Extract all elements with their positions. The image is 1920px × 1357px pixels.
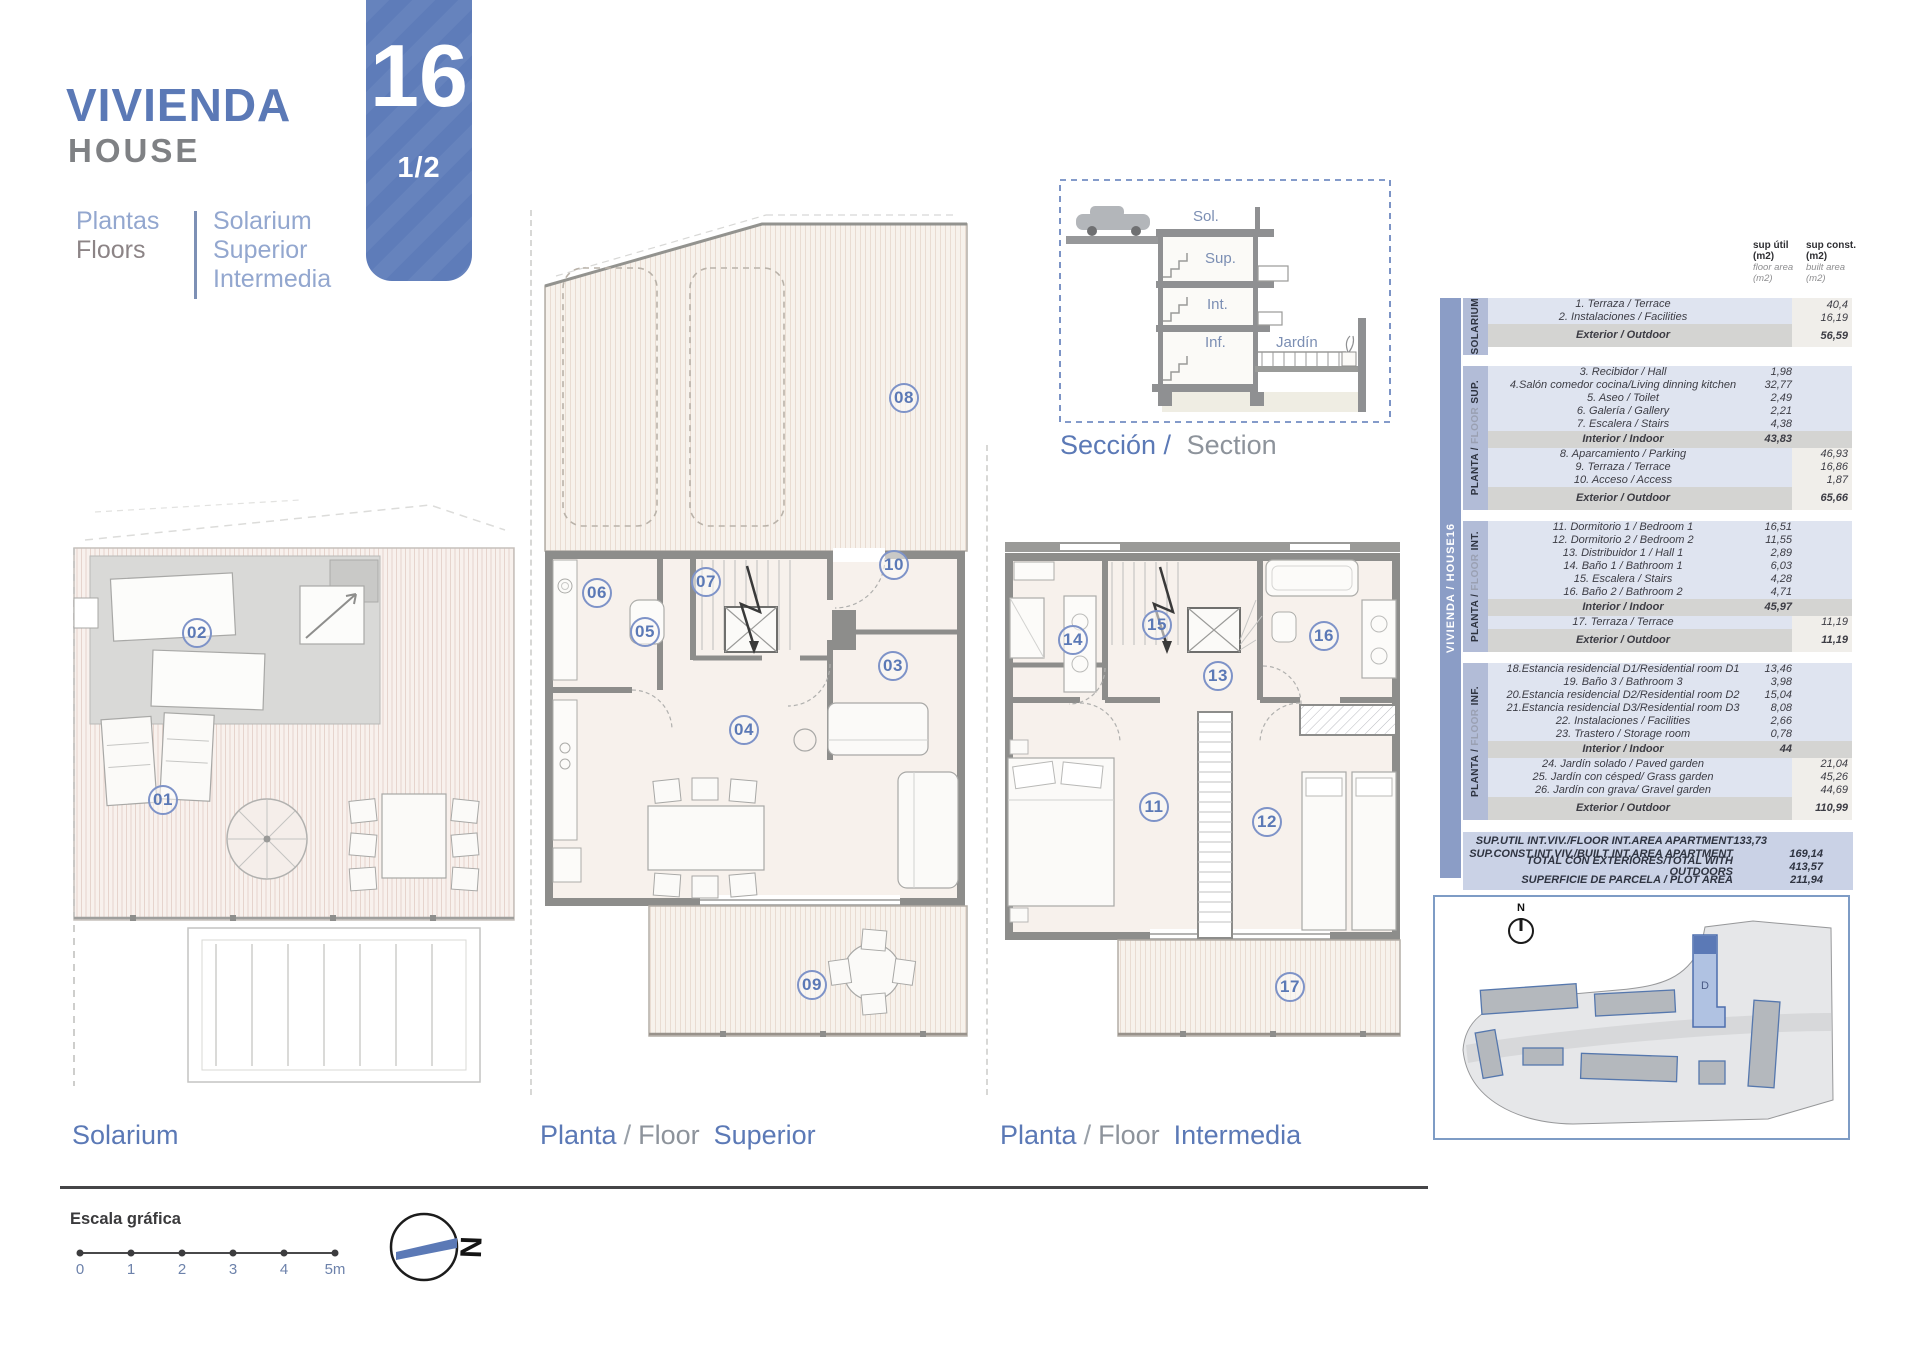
page-title-en: HOUSE bbox=[68, 132, 200, 170]
area-row-floor-value: 45,97 bbox=[1758, 601, 1792, 613]
area-row: 18.Estancia residencial D1/Residential r… bbox=[1488, 663, 1852, 676]
room-number-badge: 17 bbox=[1275, 972, 1305, 1002]
area-row-floor-value: 1,98 bbox=[1758, 366, 1792, 378]
room-number-badge: 15 bbox=[1142, 610, 1172, 640]
area-row-floor-value: 4,38 bbox=[1758, 418, 1792, 430]
plot-boundary-line bbox=[986, 445, 988, 1095]
area-row-built-value: 44,69 bbox=[1792, 784, 1852, 797]
area-row-built-value bbox=[1792, 676, 1852, 689]
parasol bbox=[227, 799, 307, 879]
area-row: Exterior / Outdoor56,59 bbox=[1488, 324, 1852, 347]
subtitle-left: Plantas Floors bbox=[76, 207, 159, 265]
area-row-label: Exterior / Outdoor bbox=[1488, 493, 1758, 504]
area-row-built-value bbox=[1792, 379, 1852, 392]
area-row-label: 17. Terraza / Terrace bbox=[1488, 617, 1758, 628]
north-label: N bbox=[1517, 902, 1525, 914]
area-row-label: 19. Baño 3 / Bathroom 3 bbox=[1488, 677, 1758, 688]
section-caption-es: Sección / bbox=[1060, 430, 1171, 460]
table-sidebar: VIVIENDA / HOUSE16 bbox=[1440, 298, 1461, 878]
area-row: 15. Escalera / Stairs4,28 bbox=[1488, 573, 1852, 586]
area-row: 7. Escalera / Stairs4,38 bbox=[1488, 418, 1852, 431]
room-number-badge: 01 bbox=[148, 785, 178, 815]
area-row: 8. Aparcamiento / Parking46,93 bbox=[1488, 448, 1852, 461]
area-row-label: 3. Recibidor / Hall bbox=[1488, 367, 1758, 378]
area-row: Exterior / Outdoor110,99 bbox=[1488, 797, 1852, 820]
room-number-badge: 13 bbox=[1203, 661, 1233, 691]
area-row-built-value bbox=[1792, 431, 1852, 448]
area-row: 17. Terraza / Terrace11,19 bbox=[1488, 616, 1852, 629]
intermedia-floor-plan bbox=[1000, 520, 1410, 1045]
section-caption: Sección / Section bbox=[1060, 430, 1277, 461]
area-row: 12. Dormitorio 2 / Bedroom 211,55 bbox=[1488, 534, 1852, 547]
footer-divider bbox=[60, 1186, 1428, 1189]
floor-tab-label: PLANTA / FLOOR INT. bbox=[1470, 531, 1481, 642]
area-row-floor-value: 4,28 bbox=[1758, 573, 1792, 585]
area-row-built-value: 16,86 bbox=[1792, 461, 1852, 474]
area-row: 16. Baño 2 / Bathroom 24,71 bbox=[1488, 586, 1852, 599]
area-row-built-value bbox=[1792, 366, 1852, 379]
area-row-built-value: 21,04 bbox=[1792, 758, 1852, 771]
areas-section: PLANTA / FLOOR INF.18.Estancia residenci… bbox=[1463, 663, 1853, 820]
room-number-badge: 06 bbox=[582, 578, 612, 608]
floor-tab-label: PLANTA / FLOOR INF. bbox=[1470, 686, 1481, 797]
area-row: 26. Jardín con grava/ Gravel garden44,69 bbox=[1488, 784, 1852, 797]
area-row-built-value: 46,93 bbox=[1792, 448, 1852, 461]
area-row-built-value bbox=[1792, 702, 1852, 715]
scale-tick: 4 bbox=[264, 1261, 304, 1278]
room-number-badge: 11 bbox=[1139, 792, 1169, 822]
subtitle-solarium: Solarium bbox=[213, 207, 331, 236]
total-row: SUP.UTIL INT.VIV./FLOOR INT.AREA APARTME… bbox=[1463, 835, 1853, 848]
section-level-sup: Sup. bbox=[1205, 250, 1236, 267]
scale-tick: 3 bbox=[213, 1261, 253, 1278]
area-row-built-value bbox=[1792, 573, 1852, 586]
area-row: 10. Acceso / Access1,87 bbox=[1488, 474, 1852, 487]
area-row-label: 11. Dormitorio 1 / Bedroom 1 bbox=[1488, 522, 1758, 533]
area-row-label: 20.Estancia residencial D2/Residential r… bbox=[1488, 690, 1758, 701]
total-row: SUPERFICIE DE PARCELA / PLOT AREA211,94 bbox=[1463, 874, 1853, 887]
area-row: 11. Dormitorio 1 / Bedroom 116,51 bbox=[1488, 521, 1852, 534]
area-row-built-value bbox=[1792, 521, 1852, 534]
areas-section: SOLARIUM1. Terraza / Terrace40,42. Insta… bbox=[1463, 298, 1853, 355]
north-compass: N bbox=[391, 1214, 487, 1280]
area-row-floor-value: 6,03 bbox=[1758, 560, 1792, 572]
area-row-label: 26. Jardín con grava/ Gravel garden bbox=[1488, 785, 1758, 796]
terrace bbox=[1118, 940, 1400, 1037]
section-level-sol: Sol. bbox=[1193, 208, 1219, 225]
house-number-badge: 16 1/2 bbox=[366, 0, 472, 281]
caption-solarium: Solarium bbox=[72, 1120, 207, 1151]
section-diagram bbox=[1055, 175, 1400, 470]
total-row: TOTAL CON EXTERIORES/TOTAL WITH OUTDOORS… bbox=[1463, 861, 1853, 874]
area-row-built-value: 40,4 bbox=[1792, 298, 1852, 311]
floor-tab-label: SOLARIUM bbox=[1470, 298, 1481, 355]
tab-text: FLOOR bbox=[1470, 404, 1481, 444]
subtitle-plantas: Plantas bbox=[76, 207, 159, 236]
area-row-built-value: 56,59 bbox=[1792, 324, 1852, 347]
tab-text: PLANTA / bbox=[1470, 745, 1481, 796]
tab-text: SOLARIUM bbox=[1470, 298, 1481, 355]
room-number-badge: 14 bbox=[1058, 625, 1088, 655]
page-title-es: VIVIENDA bbox=[66, 78, 291, 132]
area-row-label: 5. Aseo / Toilet bbox=[1488, 393, 1758, 404]
area-row-label: 22. Instalaciones / Facilities bbox=[1488, 716, 1758, 727]
section-caption-en: Section bbox=[1187, 430, 1277, 460]
area-row: Exterior / Outdoor65,66 bbox=[1488, 487, 1852, 510]
tab-text: FLOOR bbox=[1470, 705, 1481, 745]
area-row-label: Exterior / Outdoor bbox=[1488, 803, 1758, 814]
subtitle-intermedia: Intermedia bbox=[213, 265, 331, 294]
bedroom-1-furniture bbox=[1008, 740, 1114, 922]
room-number-badge: 10 bbox=[879, 550, 909, 580]
area-row-floor-value: 15,04 bbox=[1758, 689, 1792, 701]
floor-tab-label: PLANTA / FLOOR SUP. bbox=[1470, 380, 1481, 495]
area-row: 6. Galería / Gallery2,21 bbox=[1488, 405, 1852, 418]
areas-section: PLANTA / FLOOR INT.11. Dormitorio 1 / Be… bbox=[1463, 521, 1853, 652]
room-number-badge: 12 bbox=[1252, 807, 1282, 837]
outdoor-table-chairs bbox=[349, 794, 479, 891]
area-row: Interior / Indoor43,83 bbox=[1488, 431, 1852, 448]
area-row-floor-value: 13,46 bbox=[1758, 663, 1792, 675]
area-row-built-value bbox=[1792, 728, 1852, 741]
tab-text: PLANTA / bbox=[1470, 590, 1481, 641]
area-row-built-value bbox=[1792, 715, 1852, 728]
total-built-value: 211,94 bbox=[1767, 874, 1827, 887]
room-number-badge: 16 bbox=[1309, 621, 1339, 651]
page-indicator: 1/2 bbox=[366, 152, 472, 185]
scale-bar: N bbox=[60, 1200, 520, 1310]
table-sidebar-label: VIVIENDA / HOUSE16 bbox=[1445, 523, 1457, 653]
area-row-label: 4.Salón comedor cocina/Living dinning ki… bbox=[1488, 380, 1758, 391]
area-row-floor-value: 32,77 bbox=[1758, 379, 1792, 391]
superior-floor-plan bbox=[537, 205, 969, 1077]
area-row: 1. Terraza / Terrace40,4 bbox=[1488, 298, 1852, 311]
solarium-floor-plan bbox=[60, 495, 520, 1090]
tab-text: FLOOR bbox=[1470, 550, 1481, 590]
area-row: Exterior / Outdoor11,19 bbox=[1488, 629, 1852, 652]
area-row-floor-value: 2,21 bbox=[1758, 405, 1792, 417]
pergola bbox=[188, 928, 480, 1082]
areas-totals: SUP.UTIL INT.VIV./FLOOR INT.AREA APARTME… bbox=[1463, 832, 1853, 890]
area-row: 24. Jardín solado / Paved garden21,04 bbox=[1488, 758, 1852, 771]
areas-rows: 18.Estancia residencial D1/Residential r… bbox=[1488, 663, 1852, 820]
subtitle-superior: Superior bbox=[213, 236, 331, 265]
area-row-built-value bbox=[1792, 547, 1852, 560]
area-row: 21.Estancia residencial D3/Residential r… bbox=[1488, 702, 1852, 715]
area-row-floor-value: 8,08 bbox=[1758, 702, 1792, 714]
area-row-built-value bbox=[1792, 689, 1852, 702]
area-row-label: Interior / Indoor bbox=[1488, 602, 1758, 613]
area-row-label: 21.Estancia residencial D3/Residential r… bbox=[1488, 703, 1758, 714]
area-row: 22. Instalaciones / Facilities2,66 bbox=[1488, 715, 1852, 728]
area-row-floor-value: 11,55 bbox=[1758, 534, 1792, 546]
area-row-floor-value: 4,71 bbox=[1758, 586, 1792, 598]
area-row: 2. Instalaciones / Facilities16,19 bbox=[1488, 311, 1852, 324]
area-row: 20.Estancia residencial D2/Residential r… bbox=[1488, 689, 1852, 702]
caption-intermedia: Planta/FloorIntermedia bbox=[1000, 1120, 1301, 1151]
area-row-label: 24. Jardín solado / Paved garden bbox=[1488, 759, 1758, 770]
section-level-int: Int. bbox=[1207, 296, 1228, 313]
area-row-floor-value: 3,98 bbox=[1758, 676, 1792, 688]
area-row-floor-value: 44 bbox=[1758, 743, 1792, 755]
floor-tab: PLANTA / FLOOR INF. bbox=[1463, 663, 1488, 820]
area-row-label: 15. Escalera / Stairs bbox=[1488, 574, 1758, 585]
building-label: D bbox=[1701, 980, 1709, 992]
floor-tab: PLANTA / FLOOR SUP. bbox=[1463, 366, 1488, 510]
area-row-built-value bbox=[1792, 741, 1852, 758]
area-row-label: 23. Trastero / Storage room bbox=[1488, 729, 1758, 740]
area-row-label: 13. Distribuidor 1 / Hall 1 bbox=[1488, 548, 1758, 559]
section-level-inf: Inf. bbox=[1205, 334, 1226, 351]
total-built-value bbox=[1767, 835, 1827, 848]
area-row-built-value: 11,19 bbox=[1792, 616, 1852, 629]
area-row: 13. Distribuidor 1 / Hall 12,89 bbox=[1488, 547, 1852, 560]
scale-tick: 2 bbox=[162, 1261, 202, 1278]
room-number-badge: 07 bbox=[691, 567, 721, 597]
area-row: Interior / Indoor45,97 bbox=[1488, 599, 1852, 616]
total-floor-value: 133,73 bbox=[1733, 835, 1767, 847]
tab-text: INT. bbox=[1470, 531, 1481, 550]
room-number-badge: 02 bbox=[182, 618, 212, 648]
site-plan: D N bbox=[1433, 895, 1850, 1140]
area-row-built-value: 65,66 bbox=[1792, 487, 1852, 510]
tab-text: PLANTA / bbox=[1470, 444, 1481, 495]
area-row-label: 14. Baño 1 / Bathroom 1 bbox=[1488, 561, 1758, 572]
area-row-built-value: 16,19 bbox=[1792, 311, 1852, 324]
area-row-floor-value: 16,51 bbox=[1758, 521, 1792, 533]
col-header-built-area: sup const. (m2) built area (m2) bbox=[1806, 240, 1856, 284]
room-number-badge: 03 bbox=[878, 651, 908, 681]
area-row: 19. Baño 3 / Bathroom 33,98 bbox=[1488, 676, 1852, 689]
subtitle-floors: Floors bbox=[76, 236, 159, 265]
north-letter: N bbox=[453, 1236, 487, 1259]
area-row: 9. Terraza / Terrace16,86 bbox=[1488, 461, 1852, 474]
tab-text: INF. bbox=[1470, 686, 1481, 705]
plot-boundary-line bbox=[530, 210, 532, 1095]
area-row-label: 16. Baño 2 / Bathroom 2 bbox=[1488, 587, 1758, 598]
scale-tick: 1 bbox=[111, 1261, 151, 1278]
area-row-label: 7. Escalera / Stairs bbox=[1488, 419, 1758, 430]
caption-superior: Planta/FloorSuperior bbox=[540, 1120, 816, 1151]
area-row-built-value bbox=[1792, 405, 1852, 418]
area-row: 5. Aseo / Toilet2,49 bbox=[1488, 392, 1852, 405]
area-row: 3. Recibidor / Hall1,98 bbox=[1488, 366, 1852, 379]
area-row-built-value: 110,99 bbox=[1792, 797, 1852, 820]
total-row-label: SUP.UTIL INT.VIV./FLOOR INT.AREA APARTME… bbox=[1463, 836, 1733, 847]
areas-rows: 3. Recibidor / Hall1,984.Salón comedor c… bbox=[1488, 366, 1852, 510]
area-row-label: 10. Acceso / Access bbox=[1488, 475, 1758, 486]
roof-sketch bbox=[85, 500, 505, 540]
area-row-label: Interior / Indoor bbox=[1488, 434, 1758, 445]
col-header-floor-area: sup útil (m2) floor area (m2) bbox=[1753, 240, 1793, 284]
area-row-built-value bbox=[1792, 663, 1852, 676]
floor-tab: SOLARIUM bbox=[1463, 298, 1488, 355]
room-number-badge: 04 bbox=[729, 715, 759, 745]
total-row-label: SUPERFICIE DE PARCELA / PLOT AREA bbox=[1463, 875, 1733, 886]
area-row-label: 18.Estancia residencial D1/Residential r… bbox=[1488, 664, 1758, 675]
area-row-built-value bbox=[1792, 586, 1852, 599]
scale-tick: 0 bbox=[60, 1261, 100, 1278]
area-row-built-value: 45,26 bbox=[1792, 771, 1852, 784]
room-number-badge: 08 bbox=[889, 383, 919, 413]
area-row-label: 8. Aparcamiento / Parking bbox=[1488, 449, 1758, 460]
area-row-label: 1. Terraza / Terrace bbox=[1488, 299, 1758, 310]
area-row-built-value bbox=[1792, 418, 1852, 431]
area-row-floor-value: 2,89 bbox=[1758, 547, 1792, 559]
area-row-built-value bbox=[1792, 534, 1852, 547]
area-row-built-value bbox=[1792, 392, 1852, 405]
areas-table: SOLARIUM1. Terraza / Terrace40,42. Insta… bbox=[1463, 298, 1853, 890]
room-number-badge: 09 bbox=[797, 970, 827, 1000]
area-row-label: Exterior / Outdoor bbox=[1488, 635, 1758, 646]
area-row: 23. Trastero / Storage room0,78 bbox=[1488, 728, 1852, 741]
area-row-floor-value: 2,66 bbox=[1758, 715, 1792, 727]
area-row: 25. Jardín con césped/ Grass garden45,26 bbox=[1488, 771, 1852, 784]
area-row: 4.Salón comedor cocina/Living dinning ki… bbox=[1488, 379, 1852, 392]
area-row: Interior / Indoor44 bbox=[1488, 741, 1852, 758]
house-number: 16 bbox=[366, 28, 472, 124]
area-row: 14. Baño 1 / Bathroom 16,03 bbox=[1488, 560, 1852, 573]
floor-tab: PLANTA / FLOOR INT. bbox=[1463, 521, 1488, 652]
total-built-value: 413,57 bbox=[1767, 861, 1827, 874]
area-row-floor-value: 0,78 bbox=[1758, 728, 1792, 740]
area-row-label: 9. Terraza / Terrace bbox=[1488, 462, 1758, 473]
area-row-label: 25. Jardín con césped/ Grass garden bbox=[1488, 772, 1758, 783]
subtitle-divider bbox=[194, 211, 197, 299]
area-row-built-value bbox=[1792, 599, 1852, 616]
area-row-label: 12. Dormitorio 2 / Bedroom 2 bbox=[1488, 535, 1758, 546]
subtitle-floor-list: Solarium Superior Intermedia bbox=[213, 207, 331, 294]
room-number-badge: 05 bbox=[630, 617, 660, 647]
plan-sheet: VIVIENDA HOUSE Plantas Floors Solarium S… bbox=[0, 0, 1920, 1357]
area-row-built-value bbox=[1792, 560, 1852, 573]
area-row-label: Interior / Indoor bbox=[1488, 744, 1758, 755]
area-row-label: 2. Instalaciones / Facilities bbox=[1488, 312, 1758, 323]
areas-section: PLANTA / FLOOR SUP.3. Recibidor / Hall1,… bbox=[1463, 366, 1853, 510]
tab-text: SUP. bbox=[1470, 380, 1481, 404]
area-row-label: Exterior / Outdoor bbox=[1488, 330, 1758, 341]
area-row-label: 6. Galería / Gallery bbox=[1488, 406, 1758, 417]
area-row-built-value: 11,19 bbox=[1792, 629, 1852, 652]
areas-rows: 11. Dormitorio 1 / Bedroom 116,5112. Dor… bbox=[1488, 521, 1852, 652]
section-garden-label: Jardín bbox=[1276, 334, 1318, 351]
area-row-floor-value: 2,49 bbox=[1758, 392, 1792, 404]
area-row-built-value: 1,87 bbox=[1792, 474, 1852, 487]
roof-equipment-zone bbox=[74, 556, 380, 724]
scale-tick: 5m bbox=[315, 1261, 355, 1278]
total-built-value: 169,14 bbox=[1767, 848, 1827, 861]
area-row-floor-value: 43,83 bbox=[1758, 433, 1792, 445]
areas-rows: 1. Terraza / Terrace40,42. Instalaciones… bbox=[1488, 298, 1852, 355]
